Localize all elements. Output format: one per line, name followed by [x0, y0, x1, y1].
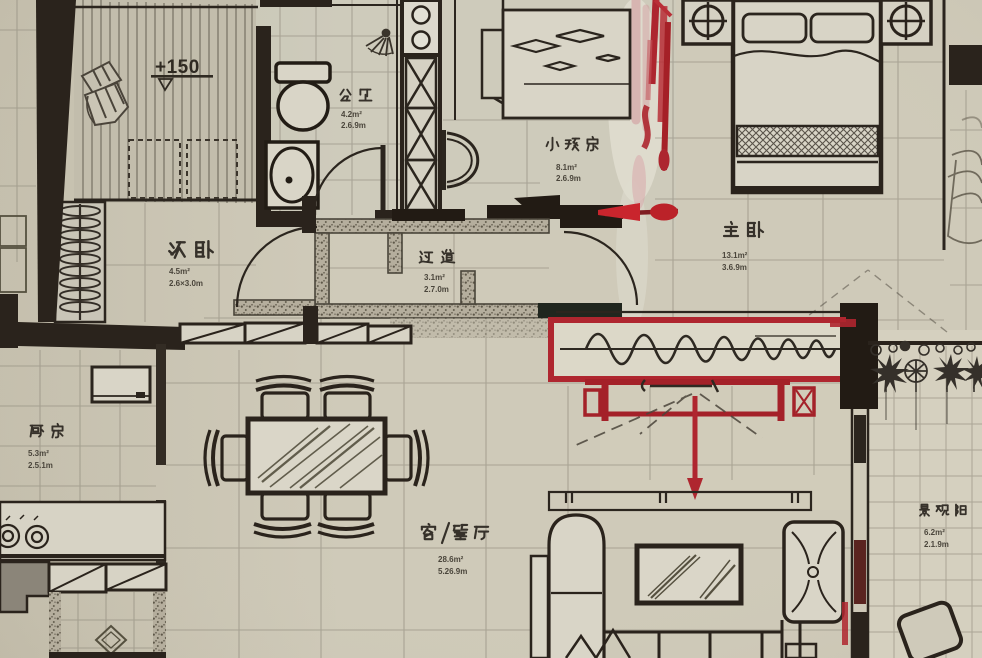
svg-text:5.26.9m: 5.26.9m [438, 567, 467, 576]
svg-text:8.1m²: 8.1m² [556, 163, 577, 172]
svg-text:28.6m²: 28.6m² [438, 555, 464, 564]
svg-text:2.6.9m: 2.6.9m [556, 174, 581, 183]
svg-text:2.6×3.0m: 2.6×3.0m [169, 279, 203, 288]
svg-text:4.2m²: 4.2m² [341, 110, 362, 119]
svg-text:+150: +150 [155, 57, 200, 78]
svg-text:2.7.0m: 2.7.0m [424, 285, 449, 294]
svg-text:13.1m²: 13.1m² [722, 251, 748, 260]
svg-text:2.5.1m: 2.5.1m [28, 461, 53, 470]
svg-text:3.6.9m: 3.6.9m [722, 263, 747, 272]
svg-text:3.1m²: 3.1m² [424, 273, 445, 282]
svg-text:5.3m²: 5.3m² [28, 449, 49, 458]
svg-text:4.5m²: 4.5m² [169, 267, 190, 276]
svg-text:6.2m²: 6.2m² [924, 528, 945, 537]
svg-text:2.6.9m: 2.6.9m [341, 121, 366, 130]
svg-text:2.1.9m: 2.1.9m [924, 540, 949, 549]
